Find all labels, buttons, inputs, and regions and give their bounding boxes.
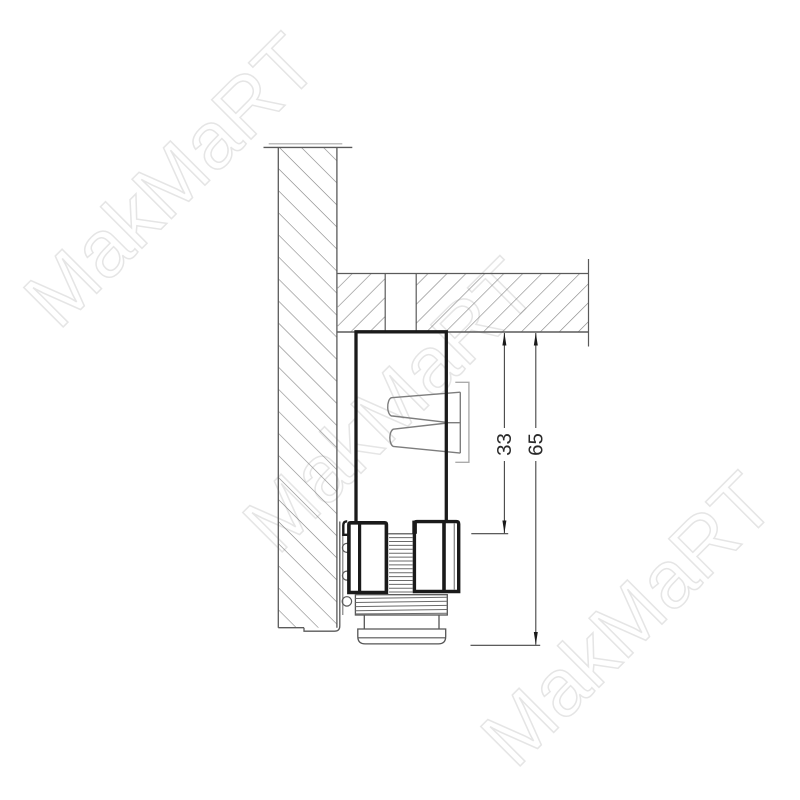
svg-text:33: 33	[493, 433, 516, 456]
svg-text:MakMaRT: MakMaRT	[465, 457, 792, 784]
svg-text:65: 65	[525, 433, 548, 456]
